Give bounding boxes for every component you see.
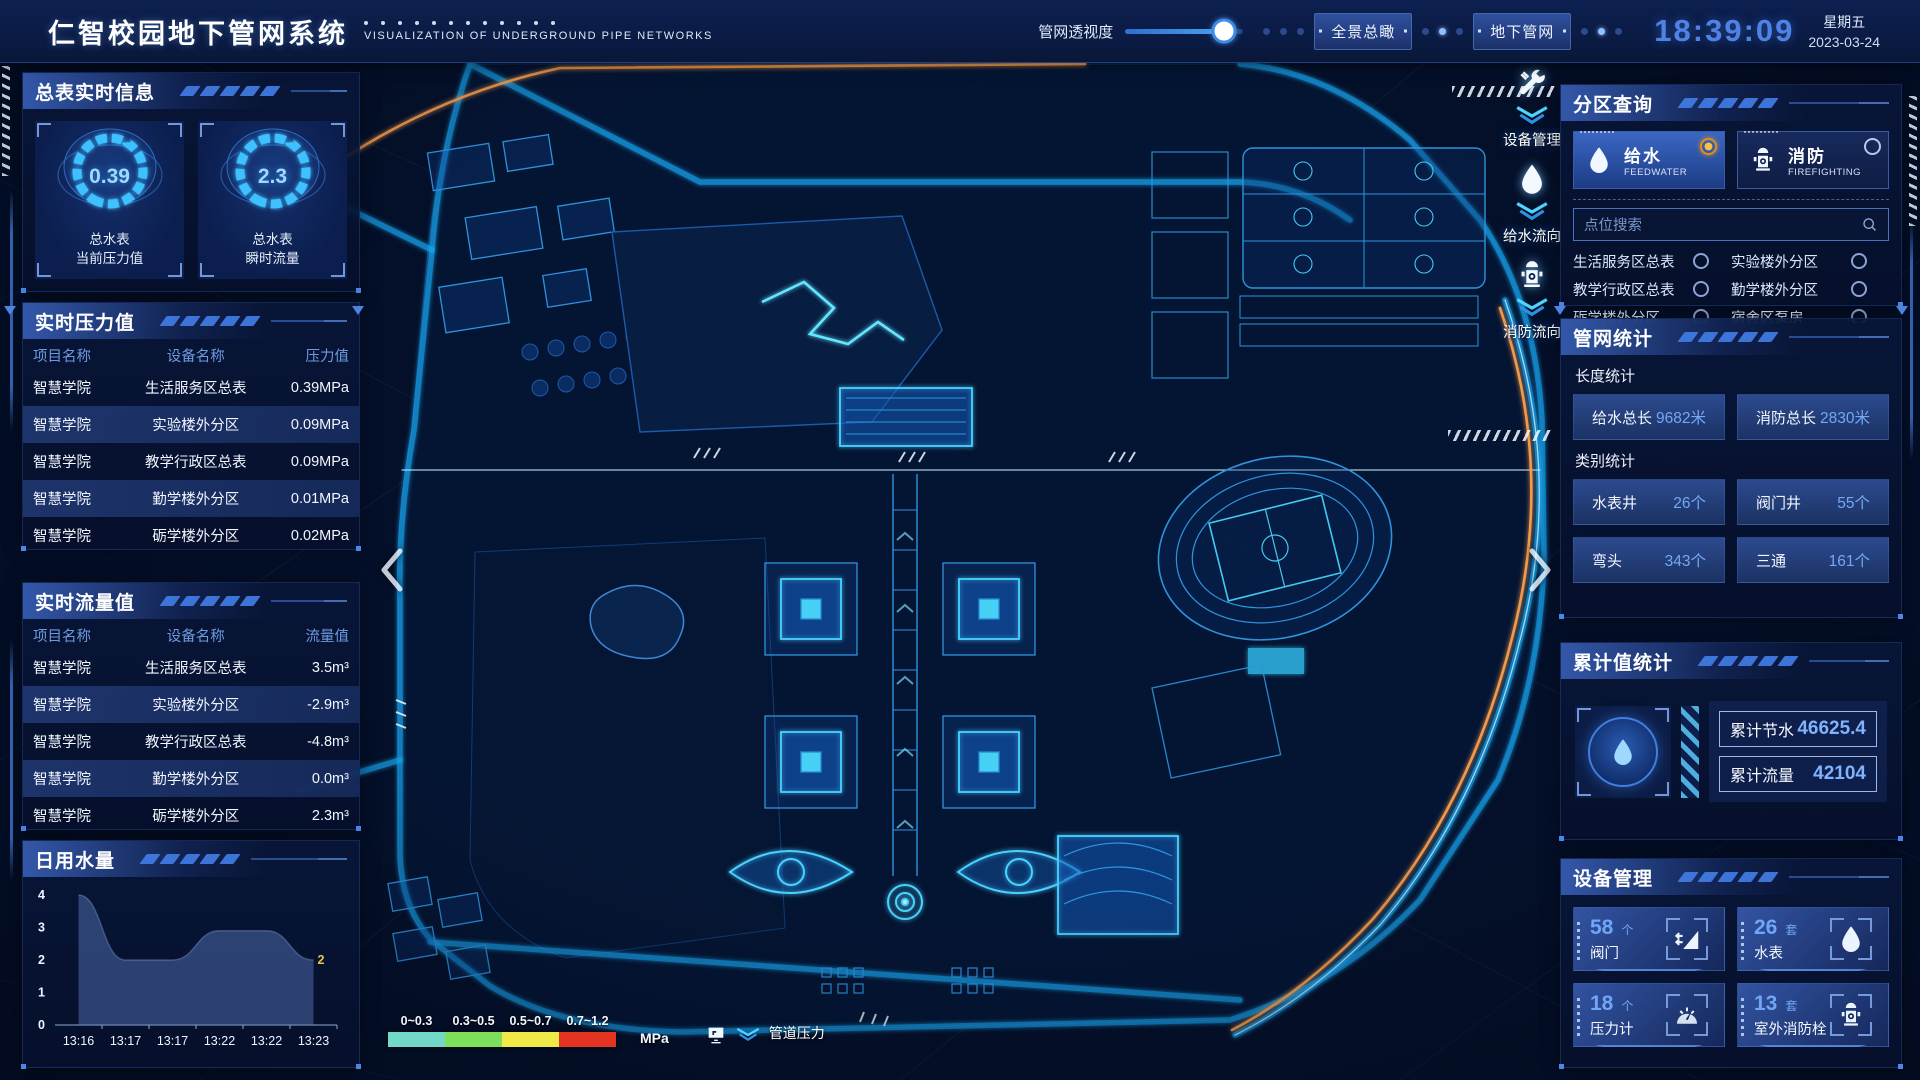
chevron-down-icon — [1514, 297, 1550, 319]
table-cell: 智慧学院 — [33, 731, 125, 752]
table-cell: 智慧学院 — [33, 805, 125, 826]
table-row[interactable]: 智慧学院勤学楼外分区0.0m³ — [23, 760, 359, 797]
panel-device-management: 设备管理 58个阀门26套水表18个压力计13套室外消防栓 — [1560, 858, 1902, 1068]
panel-realtime-pressure: 实时压力值 项目名称设备名称压力值 智慧学院生活服务区总表0.39MPa智慧学院… — [22, 302, 360, 550]
device-label: 阀门 — [1590, 942, 1633, 963]
svg-text:13:17: 13:17 — [157, 1034, 188, 1048]
pressure-table-body: 智慧学院生活服务区总表0.39MPa智慧学院实验楼外分区0.09MPa智慧学院教… — [23, 369, 359, 547]
search-placeholder: 点位搜索 — [1584, 214, 1861, 235]
app-subtitle-block: VISUALIZATION OF UNDERGROUND PIPE NETWOR… — [364, 21, 713, 42]
gauge-label-line2: 当前压力值 — [76, 249, 144, 269]
table-cell: 生活服务区总表 — [125, 657, 267, 678]
table-cell: 勤学楼外分区 — [125, 488, 267, 509]
flow-table-body: 智慧学院生活服务区总表3.5m³智慧学院实验楼外分区-2.9m³智慧学院教学行政… — [23, 649, 359, 827]
edge-arrow-decoration — [352, 306, 364, 315]
pressure-legend: 0~0.30.3~0.50.5~0.70.7~1.2 MPa 管道压力 — [388, 1014, 825, 1047]
panel-title: 分区查询 — [1573, 90, 1653, 117]
column-header: 项目名称 — [33, 345, 125, 366]
map-control-设备管理[interactable]: 设备管理 — [1503, 66, 1561, 150]
table-cell: 0.0m³ — [267, 771, 349, 787]
table-cell: -4.8m³ — [267, 734, 349, 750]
tick-strip-decoration — [1452, 86, 1556, 97]
device-card[interactable]: 13套室外消防栓 — [1737, 983, 1889, 1047]
table-cell: 智慧学院 — [33, 377, 125, 398]
dashboard-root: { "header": { "title": "仁智校园地下管网系统", "su… — [0, 0, 1920, 1080]
rail-decoration — [1910, 220, 1913, 460]
legend-range-label: 0.3~0.5 — [445, 1014, 502, 1028]
legend-range-label: 0.7~1.2 — [559, 1014, 616, 1028]
svg-text:0: 0 — [38, 1018, 45, 1032]
device-label: 室外消防栓 — [1754, 1018, 1827, 1039]
zone-option-list: 生活服务区总表实验楼外分区教学行政区总表勤学楼外分区砺学楼外分区宿舍区泵房 — [1561, 241, 1901, 323]
carousel-right-arrow[interactable] — [1528, 548, 1554, 597]
slider-thumb[interactable] — [1212, 19, 1237, 44]
column-header: 项目名称 — [33, 625, 125, 646]
svg-text:2: 2 — [318, 953, 325, 967]
gauge-value: 2.3 — [198, 165, 347, 189]
zone-option-radio[interactable] — [1693, 281, 1709, 297]
clock-time: 18:39:09 — [1654, 13, 1794, 49]
table-cell: 0.09MPa — [267, 417, 349, 433]
clock-date-block: 星期五 2023-03-24 — [1808, 12, 1880, 50]
table-cell: 智慧学院 — [33, 488, 125, 509]
cumulative-row: 累计节水46625.4 — [1719, 711, 1877, 747]
cumulative-value: 42104 — [1813, 763, 1866, 785]
panel-pipe-stats: 管网统计 长度统计 给水总长9682米消防总长2830米 类别统计 水表井26个… — [1560, 318, 1902, 618]
tab-firefighting[interactable]: 消防FIREFIGHTING — [1737, 131, 1889, 189]
stat-box[interactable]: 给水总长9682米 — [1573, 394, 1725, 440]
column-header: 压力值 — [267, 345, 349, 366]
panel-title: 累计值统计 — [1573, 648, 1673, 675]
device-count: 58个 — [1590, 916, 1633, 940]
table-row[interactable]: 智慧学院教学行政区总表0.09MPa — [23, 443, 359, 480]
hatch-decoration — [1681, 706, 1699, 798]
panel-cumulative-stats: 累计值统计 累计节水46625.4累计流量42104 — [1560, 642, 1902, 840]
table-cell: 实验楼外分区 — [125, 694, 267, 715]
table-cell: 智慧学院 — [33, 414, 125, 435]
table-cell: 砺学楼外分区 — [125, 525, 267, 546]
stat-value: 161个 — [1829, 549, 1870, 571]
stat-label: 弯头 — [1592, 550, 1622, 571]
zone-option[interactable]: 勤学楼外分区 — [1731, 275, 1889, 303]
stat-label: 三通 — [1756, 550, 1786, 571]
device-count: 26套 — [1754, 916, 1797, 940]
gauge-label-line1: 总水表 — [246, 230, 300, 250]
svg-text:13:22: 13:22 — [204, 1034, 235, 1048]
svg-text:3: 3 — [38, 921, 45, 935]
table-cell: 智慧学院 — [33, 657, 125, 678]
tab-radio-selected[interactable] — [1700, 138, 1717, 155]
underground-network-button[interactable]: 地下管网 — [1473, 13, 1571, 50]
tick-strip-decoration — [2, 66, 10, 176]
zone-option-radio[interactable] — [1851, 253, 1867, 269]
dots-decoration — [1422, 28, 1463, 35]
table-cell: 0.39MPa — [267, 380, 349, 396]
gauge-flow-card: 2.3 总水表瞬时流量 — [198, 121, 347, 279]
table-row[interactable]: 智慧学院生活服务区总表3.5m³ — [23, 649, 359, 686]
stat-box[interactable]: 阀门井55个 — [1737, 479, 1889, 525]
panel-title: 实时流量值 — [35, 588, 135, 615]
stat-value: 55个 — [1837, 491, 1870, 513]
legend-range-labels: 0~0.30.3~0.50.5~0.70.7~1.2 — [388, 1014, 616, 1028]
device-card[interactable]: 18个压力计 — [1573, 983, 1725, 1047]
tab-sublabel: FIREFIGHTING — [1788, 167, 1861, 178]
top-header: 仁智校园地下管网系统 VISUALIZATION OF UNDERGROUND … — [0, 0, 1920, 63]
slider-fill — [1125, 29, 1224, 34]
panel-title: 日用水量 — [35, 846, 115, 873]
table-cell: 3.5m³ — [267, 660, 349, 676]
stat-label: 水表井 — [1592, 492, 1637, 513]
chevron-down-icon — [1514, 105, 1550, 127]
table-cell: 0.09MPa — [267, 454, 349, 470]
device-label: 压力计 — [1590, 1018, 1634, 1039]
carousel-left-arrow[interactable] — [378, 548, 404, 597]
table-row[interactable]: 智慧学院砺学楼外分区2.3m³ — [23, 797, 359, 827]
stat-box[interactable]: 消防总长2830米 — [1737, 394, 1889, 440]
device-card[interactable]: 26套水表 — [1737, 907, 1889, 971]
gauge-label-line2: 瞬时流量 — [246, 249, 300, 269]
stat-value: 2830米 — [1820, 406, 1870, 428]
cumulative-row: 累计流量42104 — [1719, 756, 1877, 792]
table-row[interactable]: 智慧学院勤学楼外分区0.01MPa — [23, 480, 359, 517]
table-cell: 0.01MPa — [267, 491, 349, 507]
panel-master-meter-info: 总表实时信息 0.39 总水表当前压力值 2.3 总水表瞬时流量 — [22, 72, 360, 292]
stat-value: 9682米 — [1656, 406, 1706, 428]
table-cell: 生活服务区总表 — [125, 377, 267, 398]
device-count: 18个 — [1590, 992, 1634, 1016]
svg-text:2: 2 — [38, 953, 45, 967]
tab-radio[interactable] — [1864, 138, 1881, 155]
zone-option-radio[interactable] — [1693, 253, 1709, 269]
stat-label: 阀门井 — [1756, 492, 1801, 513]
gauge-cards: 0.39 总水表当前压力值 2.3 总水表瞬时流量 — [23, 109, 359, 279]
column-header: 设备名称 — [125, 625, 267, 646]
length-stats-subtitle: 长度统计 — [1575, 365, 1887, 386]
stat-box[interactable]: 三通161个 — [1737, 537, 1889, 583]
cumulative-label: 累计流量 — [1730, 762, 1794, 786]
category-stats-grid: 水表井26个阀门井55个弯头343个三通161个 — [1561, 479, 1901, 595]
table-header-row: 项目名称设备名称压力值 — [23, 341, 359, 369]
cumulative-value: 46625.4 — [1797, 718, 1866, 740]
tab-sublabel: FEEDWATER — [1624, 167, 1687, 178]
stat-label: 消防总长 — [1756, 407, 1816, 428]
svg-text:13:23: 13:23 — [298, 1034, 329, 1048]
length-stats-grid: 给水总长9682米消防总长2830米 — [1561, 394, 1901, 440]
zone-option[interactable]: 教学行政区总表 — [1573, 275, 1731, 303]
hydrant-icon — [1515, 258, 1549, 292]
category-stats-subtitle: 类别统计 — [1575, 450, 1887, 471]
panel-title: 总表实时信息 — [35, 78, 155, 105]
svg-text:1: 1 — [38, 986, 45, 1000]
legend-color-swatch — [502, 1032, 559, 1047]
table-header-row: 项目名称设备名称流量值 — [23, 621, 359, 649]
svg-text:13:17: 13:17 — [110, 1034, 141, 1048]
cumulative-values: 累计节水46625.4累计流量42104 — [1709, 701, 1887, 802]
map-control-label: 给水流向 — [1503, 225, 1561, 246]
water-drop-icon — [1608, 737, 1638, 767]
gauge-label-line1: 总水表 — [76, 230, 144, 250]
legend-unit: MPa — [640, 1030, 669, 1046]
stat-value: 26个 — [1673, 491, 1706, 513]
clock-date: 2023-03-24 — [1808, 34, 1880, 50]
table-row[interactable]: 智慧学院砺学楼外分区0.02MPa — [23, 517, 359, 547]
panel-realtime-flow: 实时流量值 项目名称设备名称流量值 智慧学院生活服务区总表3.5m³智慧学院实验… — [22, 582, 360, 830]
table-row[interactable]: 智慧学院实验楼外分区0.09MPa — [23, 406, 359, 443]
zone-option[interactable]: 实验楼外分区 — [1731, 247, 1889, 275]
legend-color-bar — [388, 1032, 616, 1047]
app-subtitle: VISUALIZATION OF UNDERGROUND PIPE NETWOR… — [364, 30, 713, 42]
svg-text:13:22: 13:22 — [251, 1034, 282, 1048]
title-dots-decoration — [364, 21, 713, 25]
edge-arrow-decoration — [1554, 306, 1566, 315]
tab-label: 消防 — [1788, 142, 1861, 167]
transparency-slider-label: 管网透视度 — [1038, 21, 1113, 42]
legend-caption: 管道压力 — [769, 1023, 825, 1043]
gauge-pressure-card: 0.39 总水表当前压力值 — [35, 121, 184, 279]
legend-color-swatch — [445, 1032, 502, 1047]
water-badge — [1575, 706, 1671, 798]
zone-option-label: 生活服务区总表 — [1573, 251, 1675, 272]
gauge-value: 0.39 — [35, 165, 184, 189]
dashed-separator — [1573, 199, 1889, 200]
panel-title: 实时压力值 — [35, 308, 135, 335]
zone-option-label: 实验楼外分区 — [1731, 251, 1818, 272]
chevron-down-icon — [1514, 201, 1550, 223]
water-drop-icon — [1515, 162, 1549, 196]
device-card[interactable]: 58个阀门 — [1573, 907, 1725, 971]
tick-strip-decoration — [1448, 430, 1552, 441]
monitor-icon — [705, 1024, 727, 1046]
transparency-slider[interactable] — [1125, 29, 1243, 34]
map-control-给水流向[interactable]: 给水流向 — [1503, 162, 1561, 246]
table-cell: 实验楼外分区 — [125, 414, 267, 435]
panel-daily-water: 日用水量 0123413:1613:1713:1713:2213:2213:23… — [22, 840, 360, 1068]
edge-arrow-decoration — [1896, 306, 1908, 315]
search-icon[interactable] — [1861, 216, 1878, 233]
legend-color-swatch — [388, 1032, 445, 1047]
stat-box[interactable]: 弯头343个 — [1573, 537, 1725, 583]
panel-title: 管网统计 — [1573, 324, 1653, 351]
app-title: 仁智校园地下管网系统 — [48, 12, 348, 51]
svg-text:13:16: 13:16 — [63, 1034, 94, 1048]
table-cell: -2.9m³ — [267, 697, 349, 713]
device-cards-grid: 58个阀门26套水表18个压力计13套室外消防栓 — [1561, 895, 1901, 1059]
column-header: 流量值 — [267, 625, 349, 646]
map-control-label: 设备管理 — [1503, 129, 1561, 150]
table-cell: 2.3m³ — [267, 808, 349, 824]
table-cell: 教学行政区总表 — [125, 451, 267, 472]
table-row[interactable]: 智慧学院生活服务区总表0.39MPa — [23, 369, 359, 406]
header-controls: 管网透视度 全景总瞰 地下管网 18:39:09 星期五 2023-03-24 — [1038, 12, 1906, 50]
zone-option-radio[interactable] — [1851, 281, 1867, 297]
svg-text:4: 4 — [38, 888, 45, 902]
table-row[interactable]: 智慧学院教学行政区总表-4.8m³ — [23, 723, 359, 760]
stat-value: 343个 — [1665, 549, 1706, 571]
map-control-label: 消防流向 — [1503, 321, 1561, 342]
table-cell: 0.02MPa — [267, 528, 349, 544]
legend-range-label: 0~0.3 — [388, 1014, 445, 1028]
panorama-button[interactable]: 全景总瞰 — [1314, 13, 1412, 50]
edge-arrow-decoration — [4, 306, 16, 315]
device-label: 水表 — [1754, 942, 1797, 963]
tab-label: 给水 — [1624, 142, 1687, 167]
table-cell: 智慧学院 — [33, 694, 125, 715]
hydrant-icon — [1748, 145, 1778, 175]
map-control-消防流向[interactable]: 消防流向 — [1503, 258, 1561, 342]
tab-feedwater[interactable]: 给水FEEDWATER — [1573, 131, 1725, 189]
tick-strip-decoration — [1909, 96, 1917, 226]
chevron-down-icon — [735, 1027, 761, 1043]
panel-zone-query: 分区查询 给水FEEDWATER 消防FIREFIGHTING 点位搜索 生活服… — [1560, 84, 1902, 306]
zone-option-label: 勤学楼外分区 — [1731, 279, 1818, 300]
table-cell: 教学行政区总表 — [125, 731, 267, 752]
table-cell: 砺学楼外分区 — [125, 805, 267, 826]
panel-title: 设备管理 — [1573, 864, 1653, 891]
search-input[interactable]: 点位搜索 — [1573, 208, 1889, 241]
dots-decoration — [1263, 28, 1304, 35]
rail-decoration — [10, 640, 13, 880]
zone-option[interactable]: 生活服务区总表 — [1573, 247, 1731, 275]
table-cell: 智慧学院 — [33, 451, 125, 472]
column-header: 设备名称 — [125, 345, 267, 366]
legend-color-swatch — [559, 1032, 616, 1047]
clock-weekday: 星期五 — [1823, 12, 1865, 32]
water-drop-icon — [1584, 145, 1614, 175]
table-cell: 勤学楼外分区 — [125, 768, 267, 789]
stat-label: 给水总长 — [1592, 407, 1652, 428]
daily-water-chart: 0123413:1613:1713:1713:2213:2213:232 — [23, 877, 359, 1062]
table-cell: 智慧学院 — [33, 525, 125, 546]
slashes-decoration — [183, 86, 277, 96]
table-row[interactable]: 智慧学院实验楼外分区-2.9m³ — [23, 686, 359, 723]
zone-option-label: 教学行政区总表 — [1573, 279, 1675, 300]
cumulative-label: 累计节水 — [1730, 717, 1794, 741]
legend-range-label: 0.5~0.7 — [502, 1014, 559, 1028]
dots-decoration — [1581, 28, 1622, 35]
device-count: 13套 — [1754, 992, 1827, 1016]
stat-box[interactable]: 水表井26个 — [1573, 479, 1725, 525]
table-cell: 智慧学院 — [33, 768, 125, 789]
